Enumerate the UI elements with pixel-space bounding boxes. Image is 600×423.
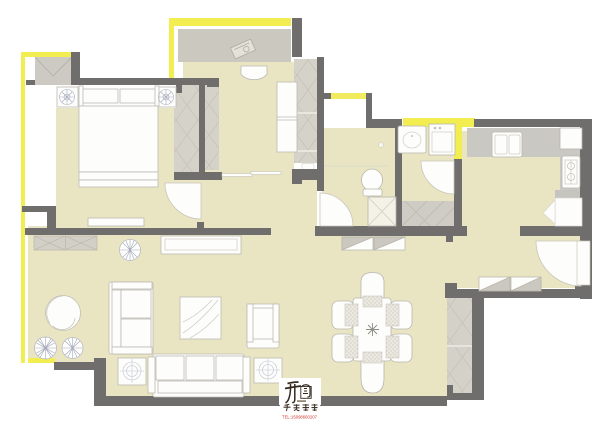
svg-text:TEL:15098660207: TEL:15098660207	[282, 415, 318, 420]
